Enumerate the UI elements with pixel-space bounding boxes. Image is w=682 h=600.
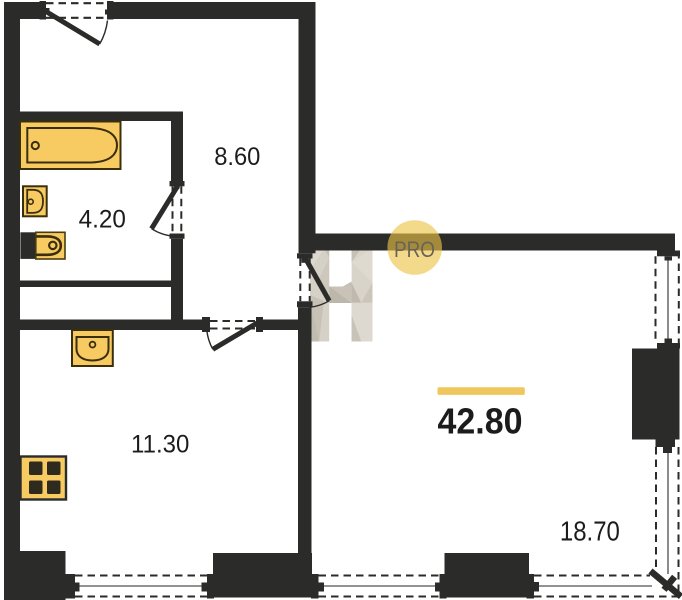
svg-text:11.30: 11.30 — [131, 431, 189, 459]
svg-text:42.80: 42.80 — [438, 401, 523, 442]
svg-text:18.70: 18.70 — [560, 515, 620, 546]
svg-text:PRO: PRO — [394, 237, 435, 262]
svg-text:4.20: 4.20 — [79, 205, 126, 233]
svg-text:8.60: 8.60 — [214, 143, 260, 171]
